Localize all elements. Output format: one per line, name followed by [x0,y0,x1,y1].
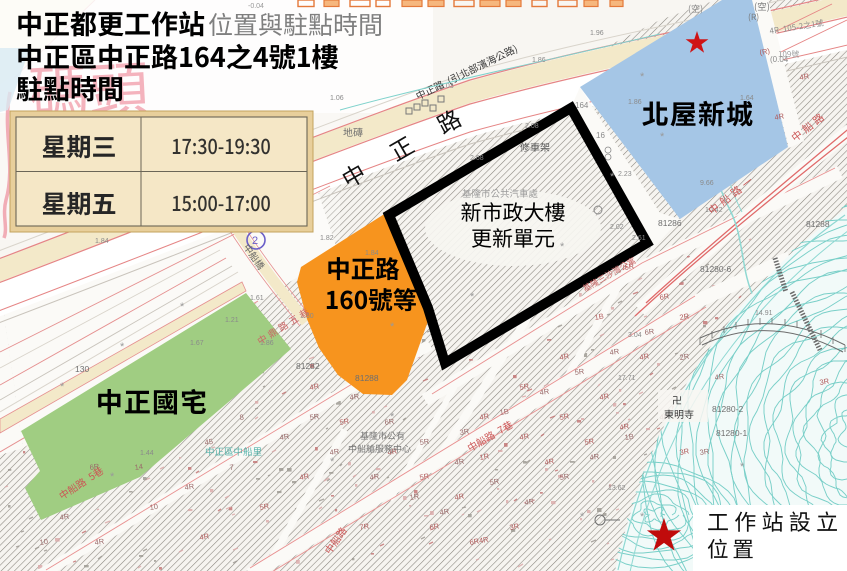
svg-text:5R: 5R [309,412,320,422]
svg-text:1.82: 1.82 [320,235,334,242]
svg-text:5R: 5R [489,477,500,487]
svg-text:*: * [110,471,115,483]
svg-text:*: * [610,171,615,183]
svg-text:81280-2: 81280-2 [712,404,743,414]
svg-text:*: * [640,511,645,523]
svg-text:81280-6: 81280-6 [700,264,731,274]
svg-text:17.71: 17.71 [618,375,636,382]
svg-text:*: * [60,381,65,393]
svg-text:*: * [740,461,745,473]
svg-text:3R: 3R [699,447,710,457]
svg-text:(0.04: (0.04 [770,55,789,64]
svg-text:130: 130 [75,364,89,374]
svg-text:4R: 4R [524,497,535,507]
svg-text:10: 10 [39,537,49,547]
svg-text:14.91: 14.91 [755,310,773,317]
svg-text:2.08: 2.08 [525,123,539,130]
svg-text:4R: 4R [439,507,450,517]
svg-text:81286: 81286 [658,218,682,228]
svg-text:4R: 4R [279,432,290,442]
svg-text:10: 10 [149,502,159,512]
svg-text:4R: 4R [59,512,70,522]
svg-text:1B: 1B [594,312,605,322]
svg-text:10.42: 10.42 [705,207,723,214]
svg-text:1.64: 1.64 [740,95,754,102]
svg-text:81282: 81282 [296,361,320,371]
svg-text:45: 45 [204,437,214,447]
svg-text:1.67: 1.67 [190,340,204,347]
svg-text:4R: 4R [589,452,600,462]
svg-text:1.96: 1.96 [590,30,604,37]
svg-text:4R: 4R [94,537,105,547]
svg-text:2.23: 2.23 [618,171,632,178]
svg-text:4R: 4R [329,447,340,457]
svg-text:81280-1: 81280-1 [716,428,747,438]
svg-text:3R: 3R [459,427,470,437]
svg-text:16: 16 [596,131,605,140]
svg-text:1B: 1B [499,407,509,417]
svg-text:*: * [330,456,335,468]
svg-text:*: * [470,291,475,303]
svg-text:*: * [390,321,395,333]
svg-text:4R: 4R [714,372,725,382]
svg-text:14: 14 [134,462,144,472]
svg-text:81288: 81288 [806,219,830,229]
svg-text:1.84: 1.84 [95,238,109,245]
svg-text:1.84: 1.84 [365,250,379,257]
svg-text:1.44: 1.44 [140,450,154,457]
svg-text:4R: 4R [369,472,380,482]
svg-text:4R: 4R [184,482,195,492]
svg-text:*: * [180,301,185,313]
svg-text:13.62: 13.62 [608,485,626,492]
svg-text:4R: 4R [539,387,550,397]
svg-text:4R: 4R [609,347,620,357]
svg-text:81288: 81288 [355,373,379,383]
svg-text:2.02: 2.02 [610,224,624,231]
svg-text:5R: 5R [574,367,585,377]
svg-text:1.86: 1.86 [628,99,642,106]
svg-text:*: * [640,71,645,83]
svg-text:-0.04: -0.04 [248,3,264,10]
svg-text:*: * [660,131,665,143]
svg-text:1.86: 1.86 [260,340,274,347]
svg-text:6R: 6R [384,417,395,427]
svg-text:*: * [580,511,585,523]
svg-text:3.04: 3.04 [628,332,642,339]
svg-text:1.61: 1.61 [250,295,264,302]
svg-text:1R: 1R [409,492,420,502]
svg-text:1.21: 1.21 [225,317,239,324]
svg-text:2: 2 [252,235,258,247]
svg-text:9.66: 9.66 [700,180,714,187]
svg-text:4R: 4R [349,392,360,402]
svg-text:4R: 4R [454,457,465,467]
svg-text:2.68: 2.68 [470,155,484,162]
svg-text:1.06: 1.06 [330,95,344,102]
svg-text:6R: 6R [644,327,655,337]
svg-text:1B: 1B [624,432,634,442]
svg-text:5R: 5R [419,437,430,447]
svg-text:5R: 5R [559,472,570,482]
svg-text:2R: 2R [679,352,690,362]
svg-text:*: * [560,241,565,253]
svg-text:*: * [120,341,125,353]
svg-text:2.61: 2.61 [632,235,646,242]
